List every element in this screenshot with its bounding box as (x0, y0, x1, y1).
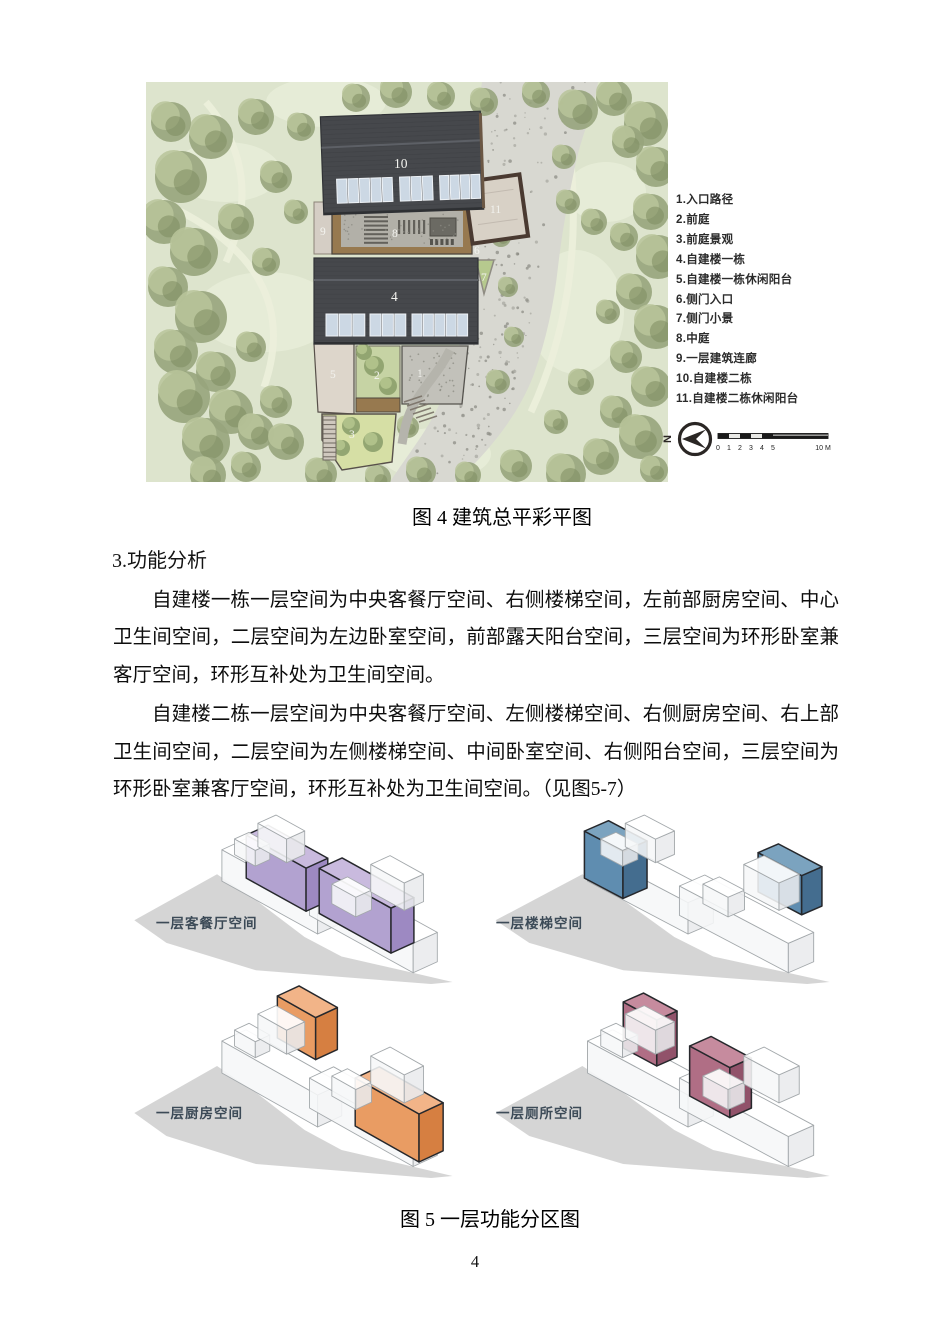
legend-item: 2.前庭 (676, 211, 798, 231)
svg-text:2: 2 (738, 445, 742, 452)
page-number: 4 (0, 1252, 950, 1272)
scale-bar: 0 1 2 3 4 5 10 M (716, 434, 831, 453)
panel-stairs: 一层楼梯空间 (470, 788, 848, 984)
legend-item: 9.一层建筑连廊 (676, 350, 798, 370)
plan-label-1: 1 (417, 368, 423, 380)
plan-label-2: 2 (374, 370, 380, 382)
legend-item: 6.侧门入口 (676, 291, 798, 311)
body-text: 自建楼一栋一层空间为中央客餐厅空间、右侧楼梯空间，左前部厨房空间、中心卫生间空间… (113, 582, 839, 810)
iso-diagram-stairs (470, 788, 848, 984)
panel-label-toilet: 一层厕所空间 (496, 1102, 583, 1122)
plan-label-7: 7 (481, 272, 487, 284)
north-arrow-icon: N (662, 424, 711, 455)
svg-text:5: 5 (771, 445, 775, 452)
legend-item: 4.自建楼一栋 (676, 251, 798, 271)
panel-toilet: 一层厕所空间 (470, 978, 848, 1178)
panel-label-living: 一层客餐厅空间 (156, 912, 258, 932)
figure4-siteplan: 1 2 3 4 5 6 7 8 9 10 11 (146, 82, 668, 482)
document-page: 1 2 3 4 5 6 7 8 9 10 11 1.入口路径 2.前庭 3.前庭… (0, 0, 950, 1344)
legend-item: 7.侧门小景 (676, 310, 798, 330)
section-heading: 3.功能分析 (112, 544, 207, 573)
svg-text:N: N (662, 435, 674, 443)
panel-kitchen: 一层厨房空间 (110, 978, 470, 1178)
legend-item: 1.入口路径 (676, 191, 798, 211)
paragraph-building-one: 自建楼一栋一层空间为中央客餐厅空间、右侧楼梯空间，左前部厨房空间、中心卫生间空间… (113, 582, 839, 694)
svg-text:10 M: 10 M (815, 445, 831, 452)
north-and-scale: N 0 1 2 3 4 5 10 M (658, 417, 894, 465)
legend-item: 8.中庭 (676, 330, 798, 350)
iso-diagram-kitchen (110, 978, 470, 1178)
panel-label-stairs: 一层楼梯空间 (496, 912, 583, 932)
legend-item: 11.自建楼二栋休闲阳台 (676, 390, 798, 410)
siteplan-illustration: 1 2 3 4 5 6 7 8 9 10 11 (146, 82, 668, 482)
svg-text:4: 4 (760, 445, 764, 452)
figure5-caption: 图 5 一层功能分区图 (0, 1203, 950, 1232)
siteplan-legend: 1.入口路径 2.前庭 3.前庭景观 4.自建楼一栋 5.自建楼一栋休闲阳台 6… (676, 191, 798, 410)
plan-label-9: 9 (320, 226, 326, 238)
iso-diagram-toilet (470, 978, 848, 1178)
plan-label-4: 4 (391, 289, 398, 304)
panel-living-dining: 一层客餐厅空间 (110, 788, 470, 984)
plan-label-6: 6 (474, 245, 480, 257)
plan-label-11: 11 (490, 204, 501, 216)
iso-diagram-living (110, 788, 470, 984)
svg-text:0: 0 (716, 445, 720, 452)
legend-item: 3.前庭景观 (676, 231, 798, 251)
panel-label-kitchen: 一层厨房空间 (156, 1102, 243, 1122)
legend-item: 10.自建楼二栋 (676, 370, 798, 390)
svg-text:3: 3 (749, 445, 753, 452)
figure4-caption: 图 4 建筑总平彩平图 (0, 501, 950, 530)
plan-label-3: 3 (349, 429, 355, 441)
svg-text:1: 1 (727, 445, 731, 452)
plan-label-10: 10 (394, 156, 408, 171)
plan-label-8: 8 (392, 228, 398, 240)
legend-item: 5.自建楼一栋休闲阳台 (676, 271, 798, 291)
plan-label-5: 5 (330, 369, 336, 381)
